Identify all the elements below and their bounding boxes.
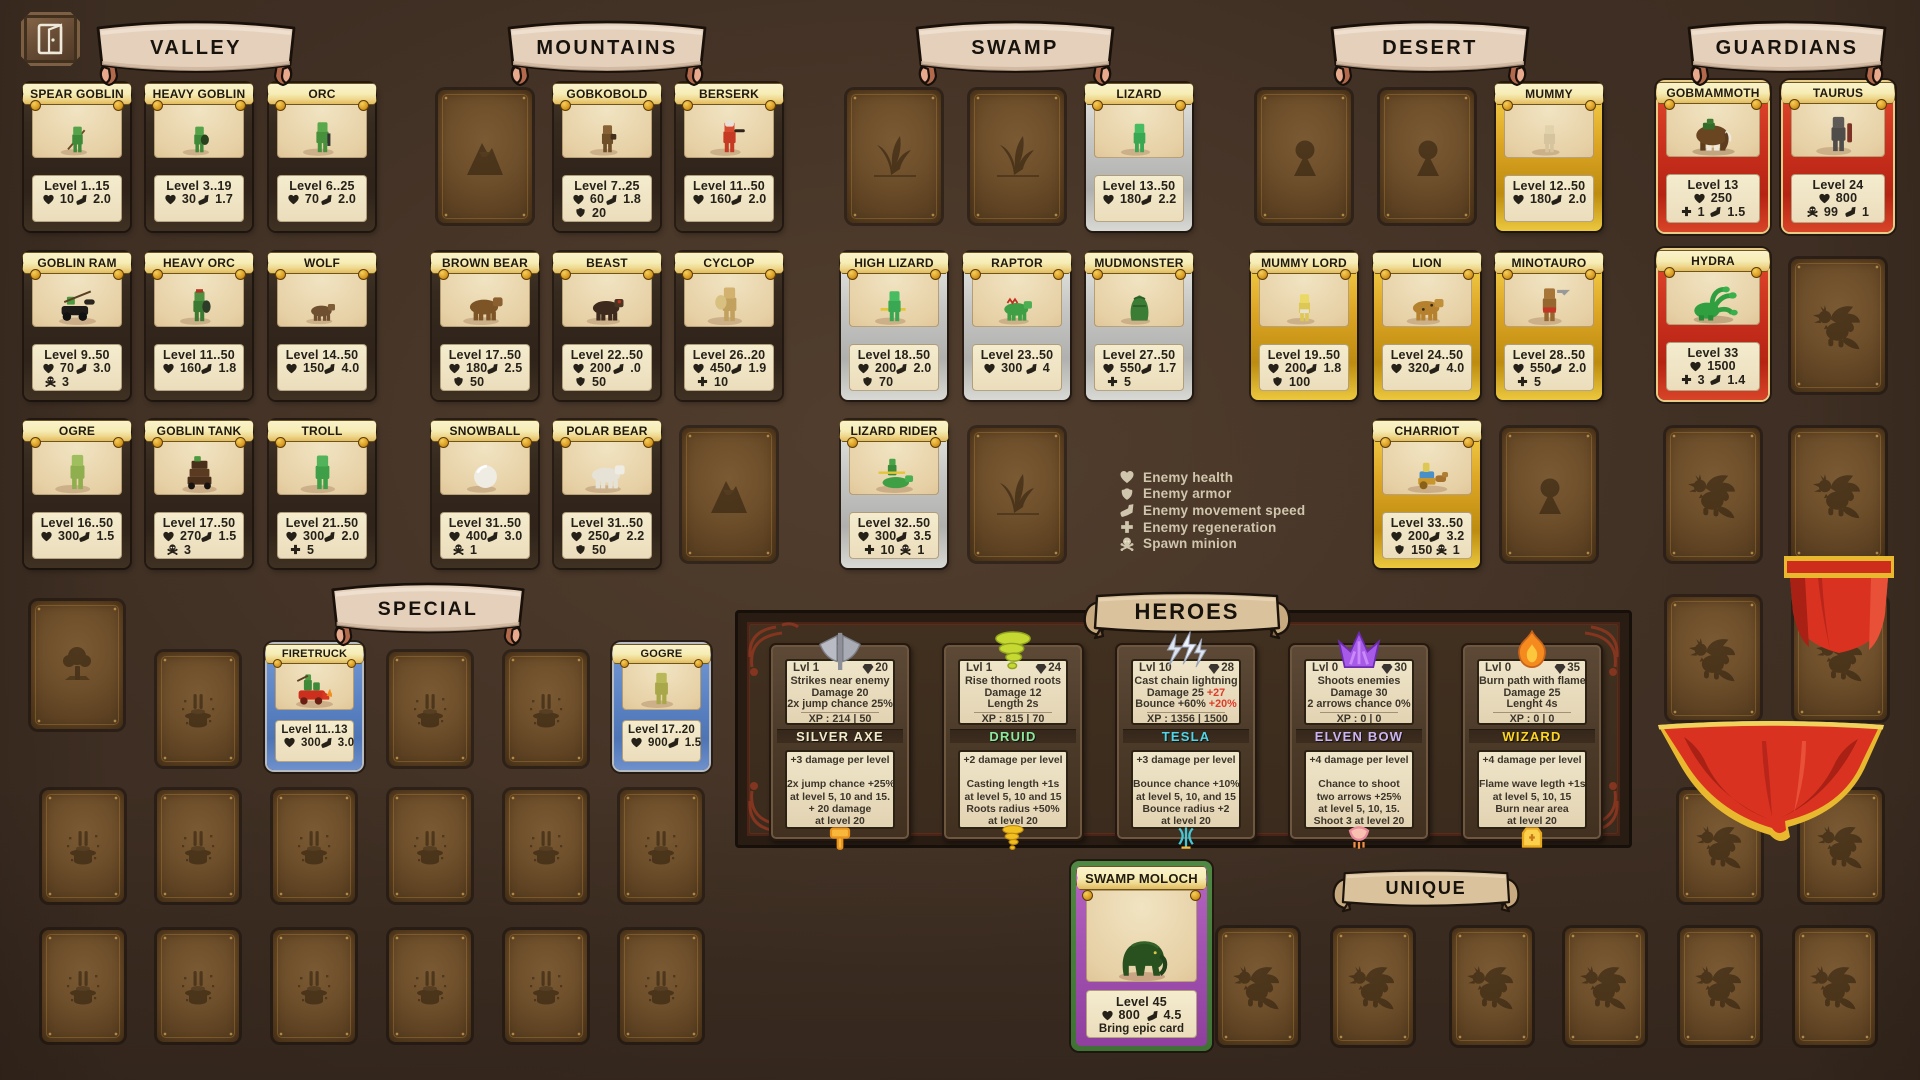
svg-text:GUARDIANS: GUARDIANS: [1716, 37, 1859, 59]
svg-text:VALLEY: VALLEY: [150, 37, 242, 59]
svg-text:SWAMP: SWAMP: [971, 37, 1059, 59]
svg-text:SPECIAL: SPECIAL: [378, 598, 479, 620]
svg-text:MOUNTAINS: MOUNTAINS: [536, 37, 677, 59]
svg-text:UNIQUE: UNIQUE: [1385, 878, 1466, 898]
svg-text:HEROES: HEROES: [1135, 599, 1240, 624]
svg-text:DESERT: DESERT: [1382, 37, 1478, 59]
